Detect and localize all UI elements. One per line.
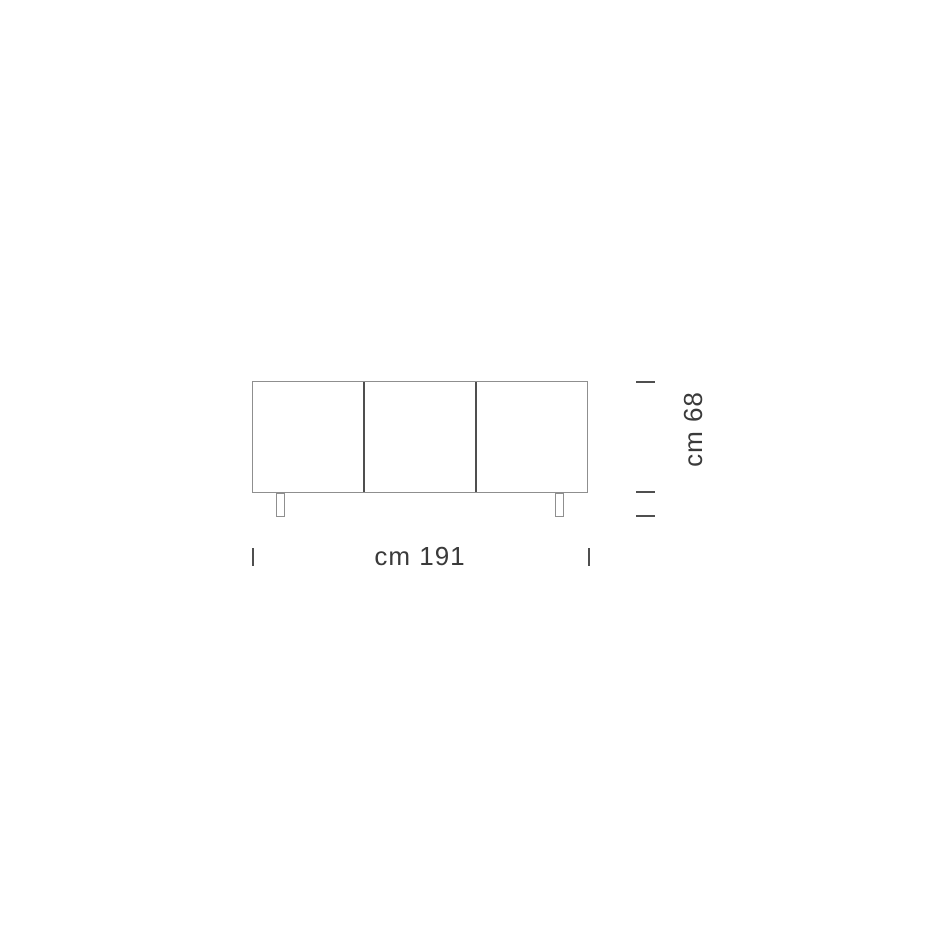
width-dimension-text: cm 191 (374, 541, 465, 572)
width-tick-right (588, 548, 590, 566)
left-leg-outline (276, 493, 285, 517)
right-leg-outline (555, 493, 564, 517)
sideboard-dimension-diagram: cm 68 cm 191 (0, 0, 950, 950)
height-dimension-text: cm 68 (678, 391, 709, 467)
width-tick-left (252, 548, 254, 566)
door-divider-line-left (363, 382, 365, 492)
height-tick-top (636, 381, 655, 383)
sideboard-body-outline (252, 381, 588, 493)
height-dimension-label: cm 68 (663, 369, 723, 489)
width-dimension-label: cm 191 (320, 541, 520, 571)
height-tick-leg-bottom (636, 515, 655, 517)
height-tick-body-bottom (636, 491, 655, 493)
door-divider-line-right (475, 382, 477, 492)
